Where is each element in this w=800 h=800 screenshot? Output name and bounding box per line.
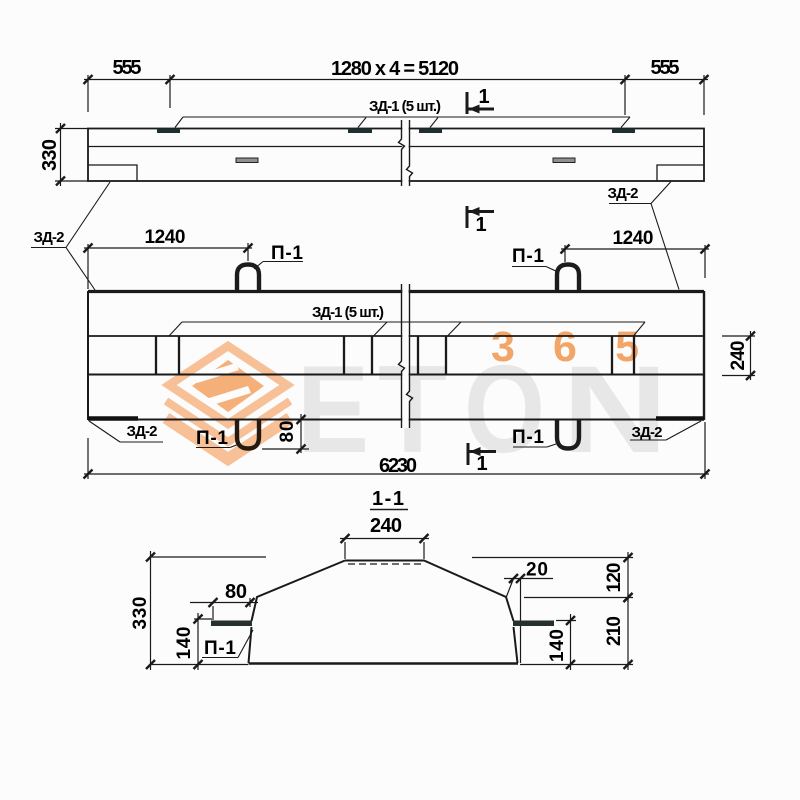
svg-text:20: 20: [526, 560, 548, 581]
svg-text:140: 140: [174, 627, 195, 660]
svg-text:П-1: П-1: [196, 428, 228, 449]
svg-text:П-1: П-1: [512, 427, 544, 448]
svg-text:E: E: [297, 341, 369, 479]
svg-text:1240: 1240: [613, 228, 654, 249]
svg-text:330: 330: [130, 597, 151, 630]
svg-text:80: 80: [225, 581, 247, 603]
svg-text:80: 80: [277, 421, 298, 443]
svg-text:ЗД-2: ЗД-2: [127, 423, 158, 440]
svg-text:330: 330: [39, 139, 61, 171]
svg-text:1240: 1240: [145, 227, 186, 248]
svg-text:П-1: П-1: [271, 243, 303, 264]
svg-text:ЗД-2: ЗД-2: [632, 424, 663, 441]
svg-text:240: 240: [728, 341, 749, 371]
svg-text:1-1: 1-1: [372, 488, 404, 510]
svg-text:120: 120: [604, 563, 625, 593]
svg-text:1280 x 4 = 5120: 1280 x 4 = 5120: [331, 58, 459, 80]
svg-text:365: 365: [491, 323, 639, 371]
svg-text:1: 1: [476, 453, 487, 475]
svg-text:210: 210: [604, 616, 625, 646]
svg-text:П-1: П-1: [204, 638, 236, 659]
svg-text:555: 555: [113, 57, 142, 79]
svg-text:140: 140: [547, 629, 568, 662]
svg-text:240: 240: [370, 515, 402, 537]
svg-text:ЗД-1 (5 шт.): ЗД-1 (5 шт.): [369, 98, 441, 115]
svg-text:П-1: П-1: [512, 246, 544, 267]
svg-text:1: 1: [478, 86, 489, 108]
svg-text:6230: 6230: [379, 455, 417, 477]
svg-text:ЗД-2: ЗД-2: [608, 185, 639, 202]
svg-text:1: 1: [475, 214, 486, 236]
svg-text:ЗД-1 (5 шт.): ЗД-1 (5 шт.): [312, 304, 384, 321]
svg-text:555: 555: [651, 57, 680, 79]
svg-text:ЗД-2: ЗД-2: [34, 229, 65, 246]
